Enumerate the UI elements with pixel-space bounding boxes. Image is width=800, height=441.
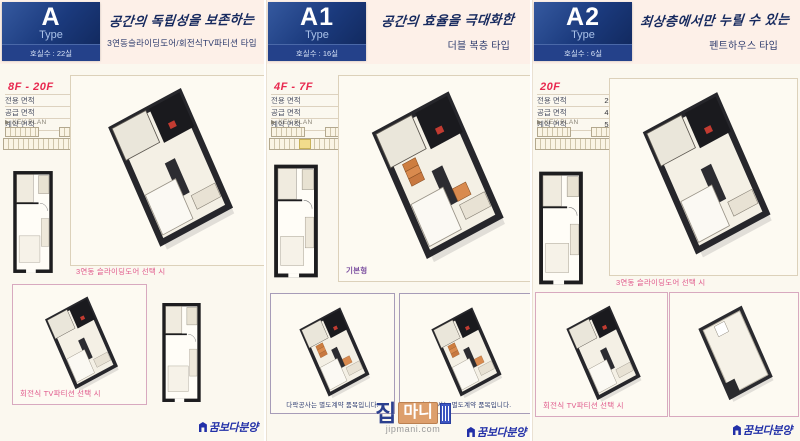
main-render-box [70,75,266,266]
render-caption: 회전식 TV파티션 선택 시 [543,400,624,411]
unit-count: 호실수 : 6실 [534,44,632,61]
option-render-box: 다락공사는 별도계약 품목입니다. [399,293,531,414]
rooftop-3d-render [678,302,790,408]
area-label: 공급 면적 [5,107,35,118]
option-render-box [669,292,799,417]
house-icon [733,425,741,435]
headline-block: 공간의 독립성을 보존하는 3연동슬라이딩도어/회전식TV파티션 타입 [100,10,264,49]
floorplan-3d-render [21,293,139,397]
headline-block: 공간의 효율을 극대화한 더블 복층 타입 [366,10,530,52]
area-label: 전용 면적 [5,95,35,106]
unit-count: 호실수 : 22실 [2,44,100,61]
brand-logo: 꿈보다분양 [733,422,792,438]
floorplan-2d [12,170,54,274]
type-badge-main: A1 Type [268,2,366,44]
type-letter: A1 [300,5,334,29]
option-render-box: 회전식 TV파티션 선택 시 [12,284,147,405]
floorplan-3d-render [83,82,253,260]
area-label: 전용 면적 [537,95,567,106]
section-a-type: A Type 호실수 : 22실 공간의 독립성을 보존하는 3연동슬라이딩도어… [0,0,266,441]
type-word: Type [571,30,595,41]
main-render-box [609,78,798,276]
type-badge: A2 Type 호실수 : 6실 [534,2,632,60]
floorplan-2d [273,160,319,282]
option-render-box: 다락공사는 별도계약 품목입니다. [270,293,395,414]
headline-text: 공간의 독립성을 보존하는 [99,9,265,31]
type-badge-main: A2 Type [534,2,632,44]
watermark-logo: 집 마니 [338,402,488,424]
watermark-word2: 마니 [398,402,437,424]
render-caption: 회전식 TV파티션 선택 시 [20,388,101,399]
column-divider [530,0,532,441]
keyplan-highlight [299,139,311,149]
keyplan-cells [537,127,571,137]
area-label: 공급 면적 [537,107,567,118]
building-icon [440,403,451,424]
subheadline-text: 더블 복층 타입 [366,37,530,52]
type-letter: A2 [566,5,600,29]
type-letter: A [41,5,60,29]
render-caption: 3연동 슬라이딩도어 선택 시 [616,277,705,288]
headline-block: 최상층에서만 누릴 수 있는 펜트하우스 타입 [632,10,798,52]
floorplan-3d-render [545,302,659,408]
brand-logo: 꿈보다분양 [199,419,258,435]
type-badge: A1 Type 호실수 : 16실 [268,2,366,60]
floorplan-2d [538,168,584,288]
column-divider [264,0,266,441]
area-label: 전용 면적 [271,95,301,106]
floorplan-2d [161,302,202,403]
watermark: 집 마니 jipmani.com [338,402,488,434]
watermark-word1: 집 [375,402,396,424]
keyplan-cells [271,127,305,137]
keyplan-label: ▶ KEY PLAN [5,118,46,126]
floorplan-3d-render [349,85,521,273]
floor-range: 8F - 20F [8,81,54,93]
keyplan-cells [5,127,39,137]
watermark-domain: jipmani.com [338,424,488,434]
floorplan-3d-render [409,304,521,404]
house-icon [199,422,207,432]
type-badge-main: A Type [2,2,100,44]
keyplan-label: ▶ KEY PLAN [271,118,312,126]
render-caption: 기본형 [346,265,367,276]
floorplan-3d-render [279,304,387,404]
subheadline-text: 3연동슬라이딩도어/회전식TV파티션 타입 [100,37,264,49]
headline-text: 최상층에서만 누릴 수 있는 [631,9,799,31]
subheadline-text: 펜트하우스 타입 [632,37,798,52]
brand-logo-text: 꿈보다분양 [743,422,792,438]
floorplan-3d-render [620,86,788,268]
area-label: 공급 면적 [271,107,301,118]
floor-range: 20F [540,81,560,93]
headline-text: 공간의 효율을 극대화한 [365,9,531,31]
option-render-box: 회전식 TV파티션 선택 시 [535,292,668,417]
keyplan-label: ▶ KEY PLAN [537,118,578,126]
brochure-page: A Type 호실수 : 22실 공간의 독립성을 보존하는 3연동슬라이딩도어… [0,0,800,441]
brand-logo-text: 꿈보다분양 [209,419,258,435]
main-render-box: 기본형 [338,75,531,282]
type-word: Type [39,30,63,41]
section-a2-type: A2 Type 호실수 : 6실 최상층에서만 누릴 수 있는 펜트하우스 타입… [532,0,800,441]
type-badge: A Type 호실수 : 22실 [2,2,100,60]
unit-count: 호실수 : 16실 [268,44,366,61]
type-word: Type [305,30,329,41]
render-caption: 3연동 슬라이딩도어 선택 시 [76,266,165,277]
section-a1-type: A1 Type 호실수 : 16실 공간의 효율을 극대화한 더블 복층 타입 … [266,0,532,441]
floor-range: 4F - 7F [274,81,313,93]
